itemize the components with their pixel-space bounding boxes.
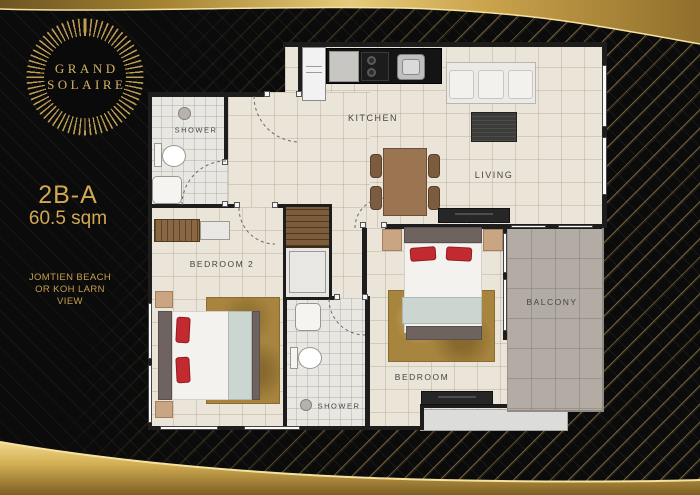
view-description: JOMTIEN BEACH OR KOH LARN VIEW [8, 272, 132, 308]
nightstand [483, 229, 503, 251]
window [558, 225, 593, 228]
room-label-shower-top: SHOWER [175, 126, 218, 135]
door-jamb [381, 222, 387, 228]
sofa-cushion [478, 70, 503, 99]
bed-footboard [406, 326, 482, 340]
dining-table [383, 148, 427, 216]
door-jamb [264, 91, 270, 97]
nightstand [155, 401, 173, 418]
bed-headboard [158, 311, 172, 400]
window [503, 279, 507, 331]
room-label-bedroom: BEDROOM [395, 372, 449, 382]
closet-bench [289, 251, 326, 292]
dining-chair [428, 186, 440, 210]
counter-top [329, 51, 359, 82]
brochure-page: GRAND SOLAIRE 2B-A 60.5 sqm JOMTIEN BEAC… [0, 0, 700, 495]
nightstand [155, 291, 173, 308]
washbasin [295, 303, 321, 331]
logo-disc: GRAND SOLAIRE [44, 36, 126, 118]
closet [283, 204, 332, 300]
window [511, 225, 546, 228]
floor-plan: SHOWER KITCHEN LIVING BALCONY BEDROOM 2 … [148, 35, 610, 435]
sofa [446, 62, 536, 104]
washbasin [152, 176, 182, 204]
dining-chair [370, 186, 382, 210]
door-jamb [334, 294, 340, 300]
hanger-rack [286, 207, 329, 248]
fridge [302, 47, 326, 101]
dining-chair [428, 154, 440, 178]
pillow [410, 246, 437, 262]
toilet-tank [290, 347, 298, 369]
door-jamb [234, 202, 240, 208]
view-line3: VIEW [8, 296, 132, 308]
sofa-cushion [449, 70, 474, 99]
unit-area: 60.5 sqm [12, 208, 124, 230]
window [148, 365, 152, 423]
room-label-balcony: BALCONY [526, 297, 577, 307]
dresser [200, 221, 230, 240]
door-jamb [360, 222, 366, 228]
sink-basin [402, 59, 420, 75]
unit-code: 2B-A [12, 181, 124, 210]
room-label-bedroom2: BEDROOM 2 [190, 259, 255, 269]
window [503, 233, 507, 273]
grand-solaire-logo: GRAND SOLAIRE [24, 16, 146, 138]
wall [224, 92, 228, 165]
window [148, 303, 152, 359]
wall [283, 42, 606, 47]
bed-footboard [252, 311, 260, 400]
door-jamb [362, 294, 368, 300]
shower-head-icon [300, 399, 312, 411]
wardrobe [154, 219, 200, 242]
sofa-cushion [508, 70, 533, 99]
toilet [298, 347, 322, 369]
bed-runner [402, 297, 482, 324]
window [602, 65, 607, 127]
window [244, 426, 300, 430]
balcony-floor [507, 228, 604, 412]
pillow [175, 357, 190, 384]
shower-head-icon [178, 107, 191, 120]
door-jamb [222, 159, 228, 165]
burner-icon [367, 68, 376, 77]
coffee-table [471, 112, 517, 142]
ac-ledge [420, 409, 568, 431]
toilet [162, 145, 186, 167]
bed-headboard [404, 227, 482, 243]
door-jamb [272, 202, 278, 208]
kitchen-counter [326, 48, 442, 84]
kitchen-sink [397, 54, 425, 80]
room-label-kitchen: KITCHEN [348, 113, 398, 123]
view-line1: JOMTIEN BEACH [8, 272, 132, 284]
bed-runner [228, 311, 252, 400]
wall [283, 296, 287, 426]
door-jamb [222, 201, 228, 207]
window [160, 426, 218, 430]
dining-chair [370, 154, 382, 178]
tv-console-bedroom [421, 391, 493, 405]
burner-icon [367, 56, 376, 65]
view-line2: OR KOH LARN [8, 284, 132, 296]
wall [148, 92, 270, 97]
window [602, 137, 607, 195]
tv-console-living [438, 208, 510, 223]
room-label-shower-bottom: SHOWER [318, 402, 361, 411]
brand-name-line1: GRAND [51, 61, 118, 77]
nightstand [382, 229, 402, 251]
pillow [175, 317, 190, 344]
stove [361, 52, 389, 81]
pillow [446, 246, 473, 261]
room-label-living: LIVING [475, 170, 514, 180]
wall [365, 296, 370, 426]
brand-name-line2: SOLAIRE [44, 77, 127, 93]
wall [420, 404, 424, 430]
wall [362, 228, 367, 296]
toilet-tank [154, 143, 162, 167]
